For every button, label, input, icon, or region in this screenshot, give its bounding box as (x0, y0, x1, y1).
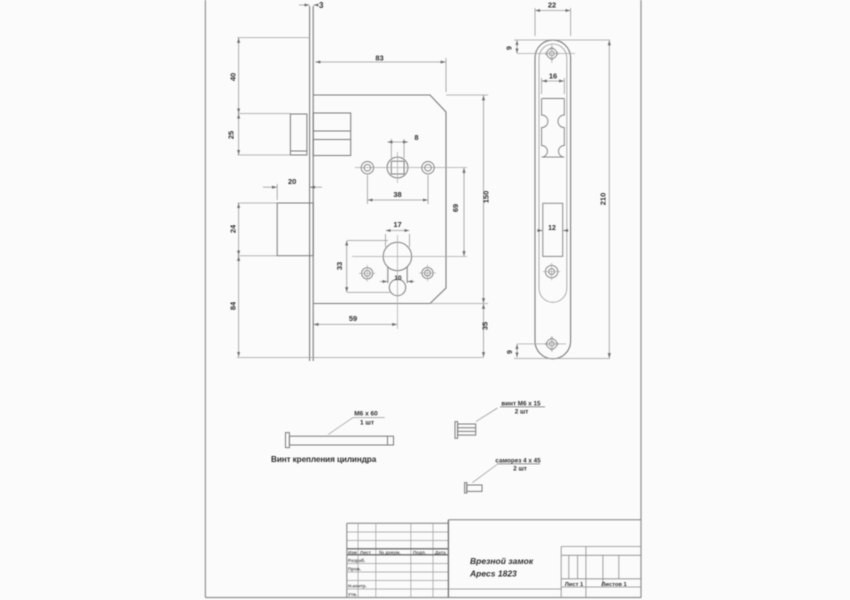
svg-text:150: 150 (482, 191, 491, 204)
svg-text:Подп.: Подп. (413, 550, 426, 555)
svg-text:Разраб.: Разраб. (348, 557, 365, 563)
svg-text:Врезной замок: Врезной замок (470, 556, 534, 566)
svg-text:22: 22 (548, 1, 556, 10)
svg-text:210: 210 (599, 193, 608, 206)
svg-text:1 шт: 1 шт (360, 420, 374, 427)
svg-text:16: 16 (549, 72, 557, 81)
svg-text:Apecs 1823: Apecs 1823 (469, 569, 517, 579)
svg-text:20: 20 (288, 177, 296, 186)
svg-text:9: 9 (507, 350, 514, 354)
svg-text:саморез 4 х 45: саморез 4 х 45 (495, 458, 541, 465)
svg-text:38: 38 (393, 190, 401, 199)
svg-text:Утв.: Утв. (348, 592, 357, 597)
svg-text:83: 83 (375, 54, 383, 63)
svg-text:69: 69 (451, 204, 460, 212)
svg-text:Лист 1: Лист 1 (565, 582, 584, 588)
svg-text:М6 х 60: М6 х 60 (354, 411, 378, 418)
svg-text:35: 35 (481, 322, 490, 330)
svg-text:Лист: Лист (360, 550, 372, 555)
svg-text:9: 9 (507, 46, 514, 50)
svg-text:Дата: Дата (435, 550, 446, 555)
svg-text:24: 24 (229, 224, 238, 233)
svg-text:17: 17 (393, 220, 401, 229)
svg-text:Изм: Изм (348, 550, 357, 555)
svg-text:40: 40 (229, 73, 238, 81)
svg-text:10: 10 (394, 275, 402, 282)
svg-text:2 шт: 2 шт (515, 409, 529, 416)
svg-text:3: 3 (319, 1, 324, 10)
svg-text:Н.контр.: Н.контр. (348, 584, 367, 589)
svg-text:8: 8 (414, 133, 418, 142)
svg-text:Пров.: Пров. (348, 567, 361, 572)
svg-text:Листов 1: Листов 1 (601, 582, 627, 588)
svg-text:25: 25 (227, 131, 236, 139)
svg-text:№ докум.: № докум. (379, 550, 401, 555)
svg-text:33: 33 (335, 262, 344, 270)
svg-text:Винт крепления цилиндра: Винт крепления цилиндра (271, 455, 377, 464)
svg-text:84: 84 (229, 301, 238, 310)
svg-text:2 шт: 2 шт (513, 466, 527, 473)
svg-text:12: 12 (548, 225, 556, 232)
svg-text:59: 59 (349, 314, 357, 323)
svg-text:винт М6 х 15: винт М6 х 15 (501, 401, 541, 408)
